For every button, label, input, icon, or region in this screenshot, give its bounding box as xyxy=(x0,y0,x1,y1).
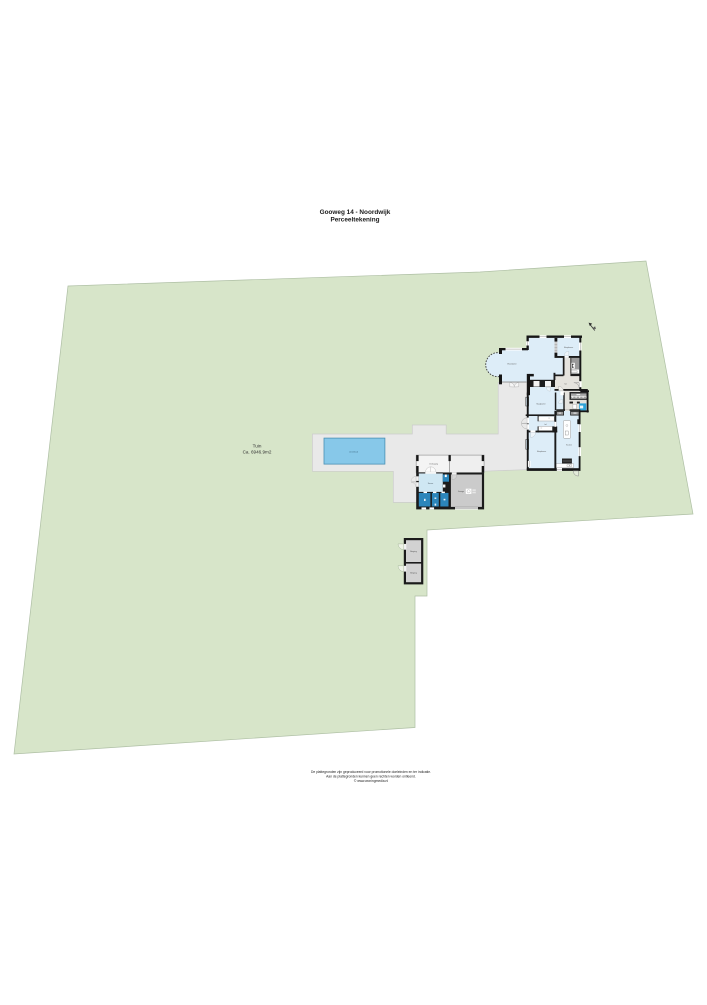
svg-text:Keuken: Keuken xyxy=(566,444,572,446)
svg-text:© www.woningmedia.nl: © www.woningmedia.nl xyxy=(354,779,388,783)
svg-text:Slaapkamer: Slaapkamer xyxy=(564,346,574,349)
svg-text:Berging: Berging xyxy=(410,550,417,553)
svg-text:Slaapkamer: Slaapkamer xyxy=(536,402,546,405)
svg-text:Garage: Garage xyxy=(458,490,464,493)
svg-text:Perceeltekening: Perceeltekening xyxy=(330,217,379,224)
svg-text:Berging: Berging xyxy=(410,571,417,574)
svg-text:Zwembad: Zwembad xyxy=(349,452,358,454)
svg-text:Aan de plattegronden kunnen ge: Aan de plattegronden kunnen geen rechten… xyxy=(326,775,416,779)
svg-text:Sauna: Sauna xyxy=(428,483,434,485)
svg-text:Tuin: Tuin xyxy=(253,444,262,449)
svg-text:Ca. 6946.9m2: Ca. 6946.9m2 xyxy=(243,450,272,455)
svg-text:De plattegronden zijn geproduc: De plattegronden zijn geproduceerd voor … xyxy=(311,770,431,774)
svg-text:Gooweg 14 - Noordwijk: Gooweg 14 - Noordwijk xyxy=(320,209,391,216)
svg-text:Woonkamer: Woonkamer xyxy=(507,362,517,365)
svg-text:Overkapping: Overkapping xyxy=(429,463,438,465)
svg-text:Slaapkamer: Slaapkamer xyxy=(537,450,547,453)
